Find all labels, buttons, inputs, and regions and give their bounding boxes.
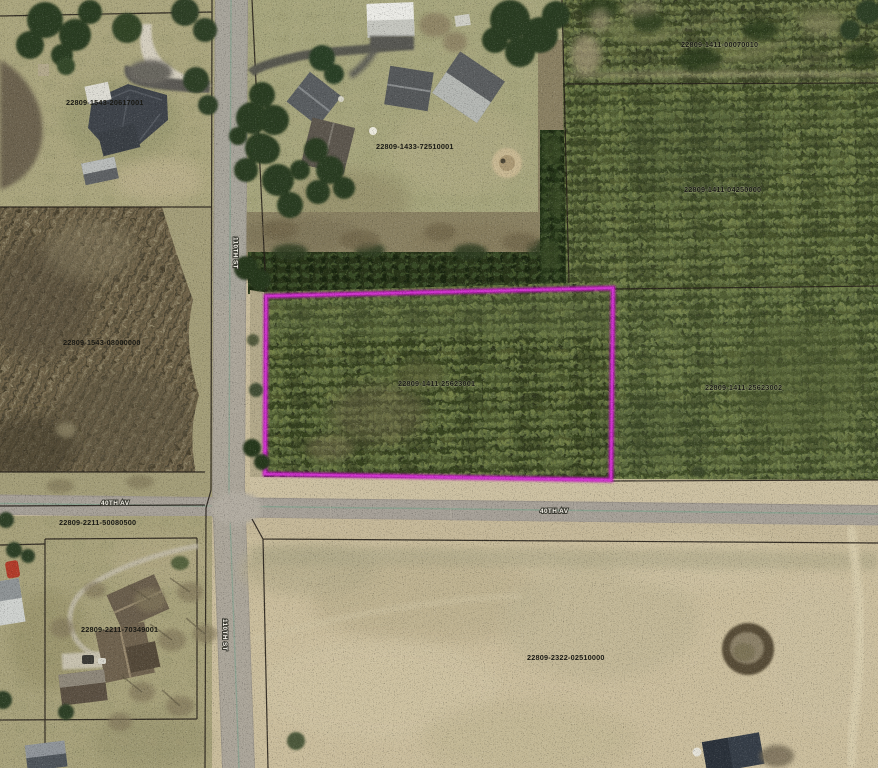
svg-text:110TH ST: 110TH ST [221,619,228,651]
svg-text:22809-1411-00070010: 22809-1411-00070010 [681,40,758,49]
svg-text:110TH ST: 110TH ST [232,237,239,269]
svg-text:22809-2211-50080500: 22809-2211-50080500 [59,518,136,527]
svg-text:22809-1543-08000000: 22809-1543-08000000 [63,338,141,347]
svg-text:22809-1411-04250000: 22809-1411-04250000 [684,185,761,194]
svg-text:22809-1433-72510001: 22809-1433-72510001 [376,142,454,151]
svg-text:22809-2211-70349001: 22809-2211-70349001 [81,625,158,634]
svg-text:40TH AV: 40TH AV [101,500,130,507]
svg-text:40TH AV: 40TH AV [540,508,569,515]
svg-text:22809-1411-25623002: 22809-1411-25623002 [705,383,782,392]
svg-text:22809-1411-25623001: 22809-1411-25623001 [398,379,475,388]
svg-text:22809-2322-02510000: 22809-2322-02510000 [527,653,605,662]
svg-text:22809-1543-20617001: 22809-1543-20617001 [66,98,144,107]
